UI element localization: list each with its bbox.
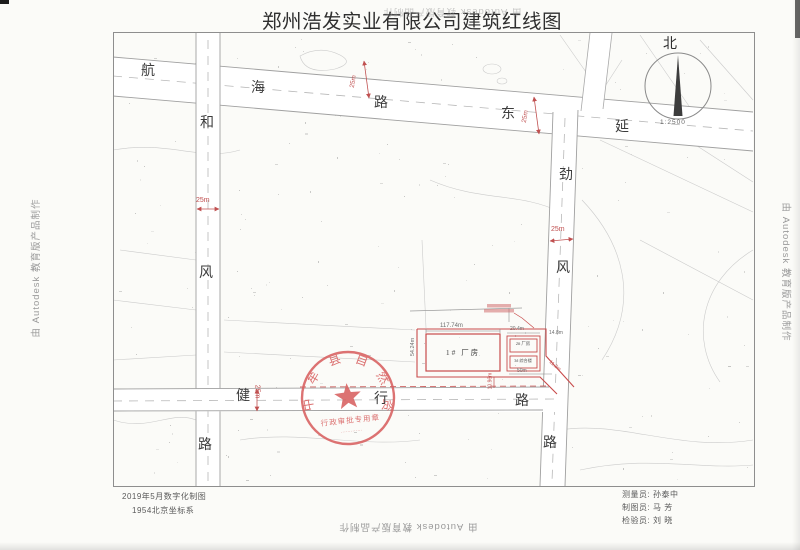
dim-cluster-bottom: 50m bbox=[517, 368, 527, 374]
dim-25m-jinfeng: 25m bbox=[551, 226, 565, 233]
road-label-hefeng-2: 风 bbox=[199, 262, 213, 282]
compass-scale-label: 1:2500 bbox=[660, 119, 686, 126]
compass-north-label: 北 bbox=[663, 33, 677, 53]
dim-cluster-right: 14.8m bbox=[549, 330, 563, 336]
dim-b1-top: 117.74m bbox=[440, 323, 463, 329]
building-1-label: 1# 厂房 bbox=[426, 347, 500, 358]
credit-drafter-name: 马 芳 bbox=[653, 503, 673, 512]
road-label-jianxing-3: 路 bbox=[515, 390, 529, 410]
scan-shadow-right bbox=[792, 0, 800, 550]
road-label-hanghai-3: 路 bbox=[374, 92, 388, 112]
scanned-redline-drawing: 中牟县自然资源局 行政审批专用章 ············· 郑州浩发实业有限公… bbox=[0, 0, 800, 550]
road-label-jinfeng-3: 路 bbox=[543, 432, 557, 452]
scan-mark-top-left bbox=[0, 0, 9, 4]
building-3-label: 3# 综合楼 bbox=[508, 358, 538, 364]
watermark-top: 由 Autodesk 教育版产品制作 bbox=[383, 6, 522, 20]
dim-cluster-top: 20.4m bbox=[510, 326, 524, 332]
road-label-hefeng-1: 和 bbox=[200, 112, 214, 132]
credit-checker: 检验员: 刘 晓 bbox=[622, 515, 673, 526]
road-label-jinfeng-2: 风 bbox=[556, 257, 570, 277]
road-label-dong: 东 bbox=[501, 103, 515, 123]
road-label-jinfeng-1: 劲 bbox=[559, 164, 573, 184]
credit-surveyor-name: 孙泰中 bbox=[653, 490, 679, 499]
road-label-hefeng-3: 路 bbox=[198, 434, 212, 454]
footer-coordinate-system: 1954北京坐标系 bbox=[132, 505, 194, 516]
dim-road-setback: 10.96m bbox=[487, 373, 493, 390]
road-label-yan: 延 bbox=[615, 116, 629, 136]
dim-25m-jianxing: 25m bbox=[253, 385, 260, 399]
credit-surveyor: 测量员: 孙泰中 bbox=[622, 489, 678, 500]
road-label-hanghai-2: 海 bbox=[251, 77, 265, 97]
building-2-label: 2# 厂房 bbox=[509, 341, 537, 347]
drawing-frame bbox=[113, 32, 755, 487]
dim-b1-left: 54.24m bbox=[410, 338, 416, 356]
credit-drafter-label: 制图员: bbox=[622, 503, 650, 512]
credit-drafter: 制图员: 马 芳 bbox=[622, 502, 673, 513]
footer-digitizing-note: 2019年5月数字化制图 bbox=[122, 491, 206, 502]
road-label-jianxing-2: 行 bbox=[374, 388, 388, 408]
road-label-jianxing-1: 健 bbox=[236, 385, 250, 405]
watermark-bottom: 由 Autodesk 教育版产品制作 bbox=[339, 521, 478, 535]
credit-surveyor-label: 测量员: bbox=[622, 490, 650, 499]
road-label-hanghai-1: 航 bbox=[141, 60, 155, 80]
dim-25m-hefeng: 25m bbox=[196, 197, 210, 204]
credit-checker-name: 刘 晓 bbox=[653, 516, 673, 525]
scan-shadow-bottom bbox=[0, 542, 800, 550]
credit-checker-label: 检验员: bbox=[622, 516, 650, 525]
watermark-left: 由 Autodesk 教育版产品制作 bbox=[28, 199, 42, 338]
